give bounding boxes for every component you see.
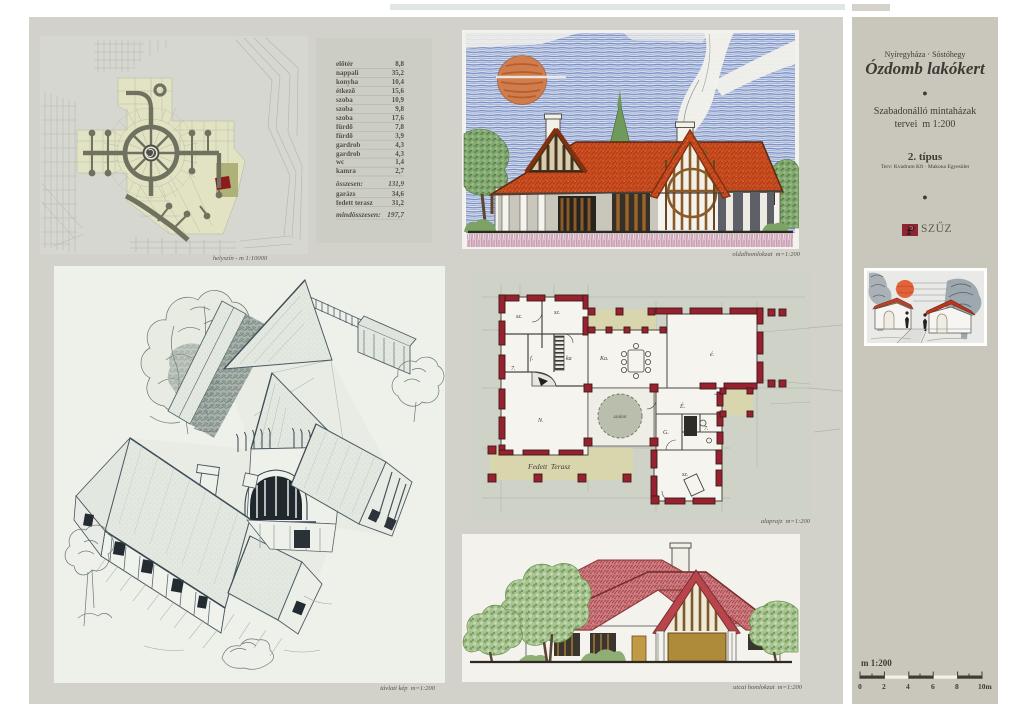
svg-text:7.: 7. — [704, 426, 709, 432]
svg-text:ka: ka — [566, 356, 572, 362]
svg-text:Fedett Terasz: Fedett Terasz — [527, 462, 570, 471]
svg-text:é.: é. — [710, 352, 714, 358]
svg-text:0: 0 — [858, 682, 862, 691]
svg-text:f.: f. — [530, 355, 533, 362]
svg-text:7.: 7. — [511, 366, 516, 372]
svg-text:G.: G. — [663, 430, 669, 436]
svg-text:sz.: sz. — [516, 314, 522, 320]
svg-text:N.: N. — [537, 418, 544, 424]
svg-text:10m: 10m — [978, 682, 993, 691]
svg-text:6: 6 — [931, 682, 935, 691]
svg-text:Ka.: Ka. — [599, 356, 609, 362]
svg-text:2: 2 — [882, 682, 886, 691]
svg-text:szalon: szalon — [614, 415, 627, 420]
svg-text:sz.: sz. — [554, 310, 560, 316]
svg-text:8: 8 — [955, 682, 959, 691]
svg-text:4: 4 — [906, 682, 910, 691]
svg-text:sz.: sz. — [682, 472, 688, 478]
svg-text:É.: É. — [679, 402, 685, 410]
